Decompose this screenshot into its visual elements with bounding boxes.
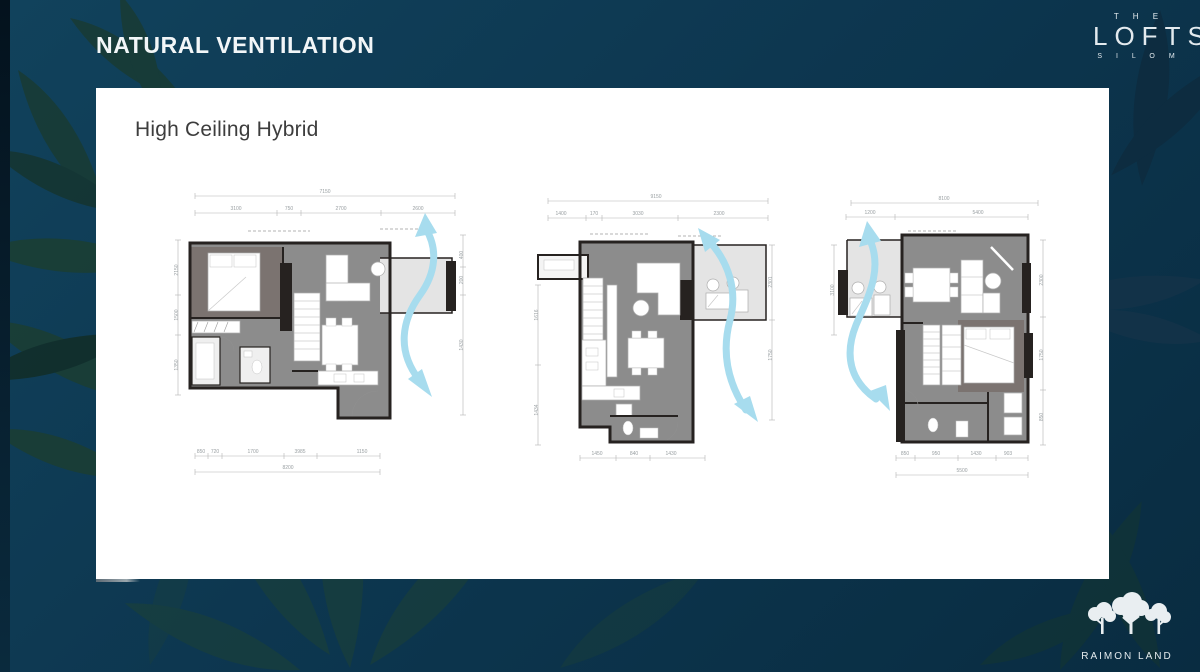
svg-text:2301: 2301 — [768, 276, 774, 287]
logo-the-text: T H E — [1086, 12, 1186, 21]
svg-text:720: 720 — [211, 449, 220, 455]
svg-text:1200: 1200 — [864, 210, 875, 216]
floor-plan-1: 7150310075027002600215015001350400200143… — [170, 185, 470, 480]
svg-text:850: 850 — [1039, 413, 1045, 422]
svg-text:1450: 1450 — [591, 451, 602, 457]
svg-text:1430: 1430 — [665, 451, 676, 457]
svg-text:3100: 3100 — [830, 284, 836, 295]
svg-text:2600: 2600 — [412, 206, 423, 212]
svg-text:2700: 2700 — [335, 206, 346, 212]
svg-text:850: 850 — [197, 449, 206, 455]
svg-text:5400: 5400 — [972, 210, 983, 216]
svg-text:1430: 1430 — [970, 451, 981, 457]
svg-text:1434: 1434 — [534, 404, 540, 415]
floor-plan-3: 8100120054003100230017508508509501430903… — [828, 185, 1078, 505]
svg-text:1616: 1616 — [534, 309, 540, 320]
svg-text:1350: 1350 — [174, 359, 180, 370]
svg-text:9150: 9150 — [650, 194, 661, 200]
raimon-land-logo: RAIMON LAND — [1072, 592, 1182, 662]
svg-text:170: 170 — [590, 211, 599, 217]
raimon-land-text: RAIMON LAND — [1072, 651, 1182, 662]
svg-text:7150: 7150 — [319, 189, 330, 195]
svg-text:750: 750 — [285, 206, 294, 212]
logo-silom-text: S I L O M — [1086, 53, 1186, 60]
svg-text:1430: 1430 — [459, 339, 465, 350]
svg-text:8100: 8100 — [938, 196, 949, 202]
svg-text:400: 400 — [459, 251, 465, 260]
svg-text:1700: 1700 — [247, 449, 258, 455]
svg-text:1400: 1400 — [555, 211, 566, 217]
svg-text:1500: 1500 — [174, 309, 180, 320]
svg-text:950: 950 — [932, 451, 941, 457]
svg-text:1750: 1750 — [1039, 349, 1045, 360]
svg-text:3030: 3030 — [632, 211, 643, 217]
content-panel: High Ceiling Hybrid — [96, 88, 1109, 579]
svg-text:903: 903 — [1004, 451, 1013, 457]
svg-text:840: 840 — [630, 451, 639, 457]
svg-text:2300: 2300 — [713, 211, 724, 217]
floor-plan-2: 9150140017030302300161614342301175014508… — [528, 190, 778, 480]
svg-text:2150: 2150 — [174, 264, 180, 275]
svg-text:1150: 1150 — [357, 449, 368, 455]
svg-text:2300: 2300 — [1039, 274, 1045, 285]
left-edge-strip — [0, 0, 10, 672]
svg-text:1750: 1750 — [768, 349, 774, 360]
svg-text:200: 200 — [459, 276, 465, 285]
slide-background: NATURAL VENTILATION T H E LOFTS S I L O … — [0, 0, 1200, 672]
section-heading: High Ceiling Hybrid — [135, 118, 319, 142]
lofts-silom-logo: T H E LOFTS S I L O M — [1086, 12, 1186, 60]
svg-text:3100: 3100 — [230, 206, 241, 212]
svg-text:850: 850 — [901, 451, 910, 457]
svg-text:8200: 8200 — [282, 465, 293, 471]
svg-text:5500: 5500 — [956, 468, 967, 474]
slide-title: NATURAL VENTILATION — [96, 32, 374, 59]
svg-text:3985: 3985 — [294, 449, 305, 455]
logo-lofts-text: LOFTS — [1086, 23, 1186, 49]
tree-icon — [1079, 592, 1175, 644]
